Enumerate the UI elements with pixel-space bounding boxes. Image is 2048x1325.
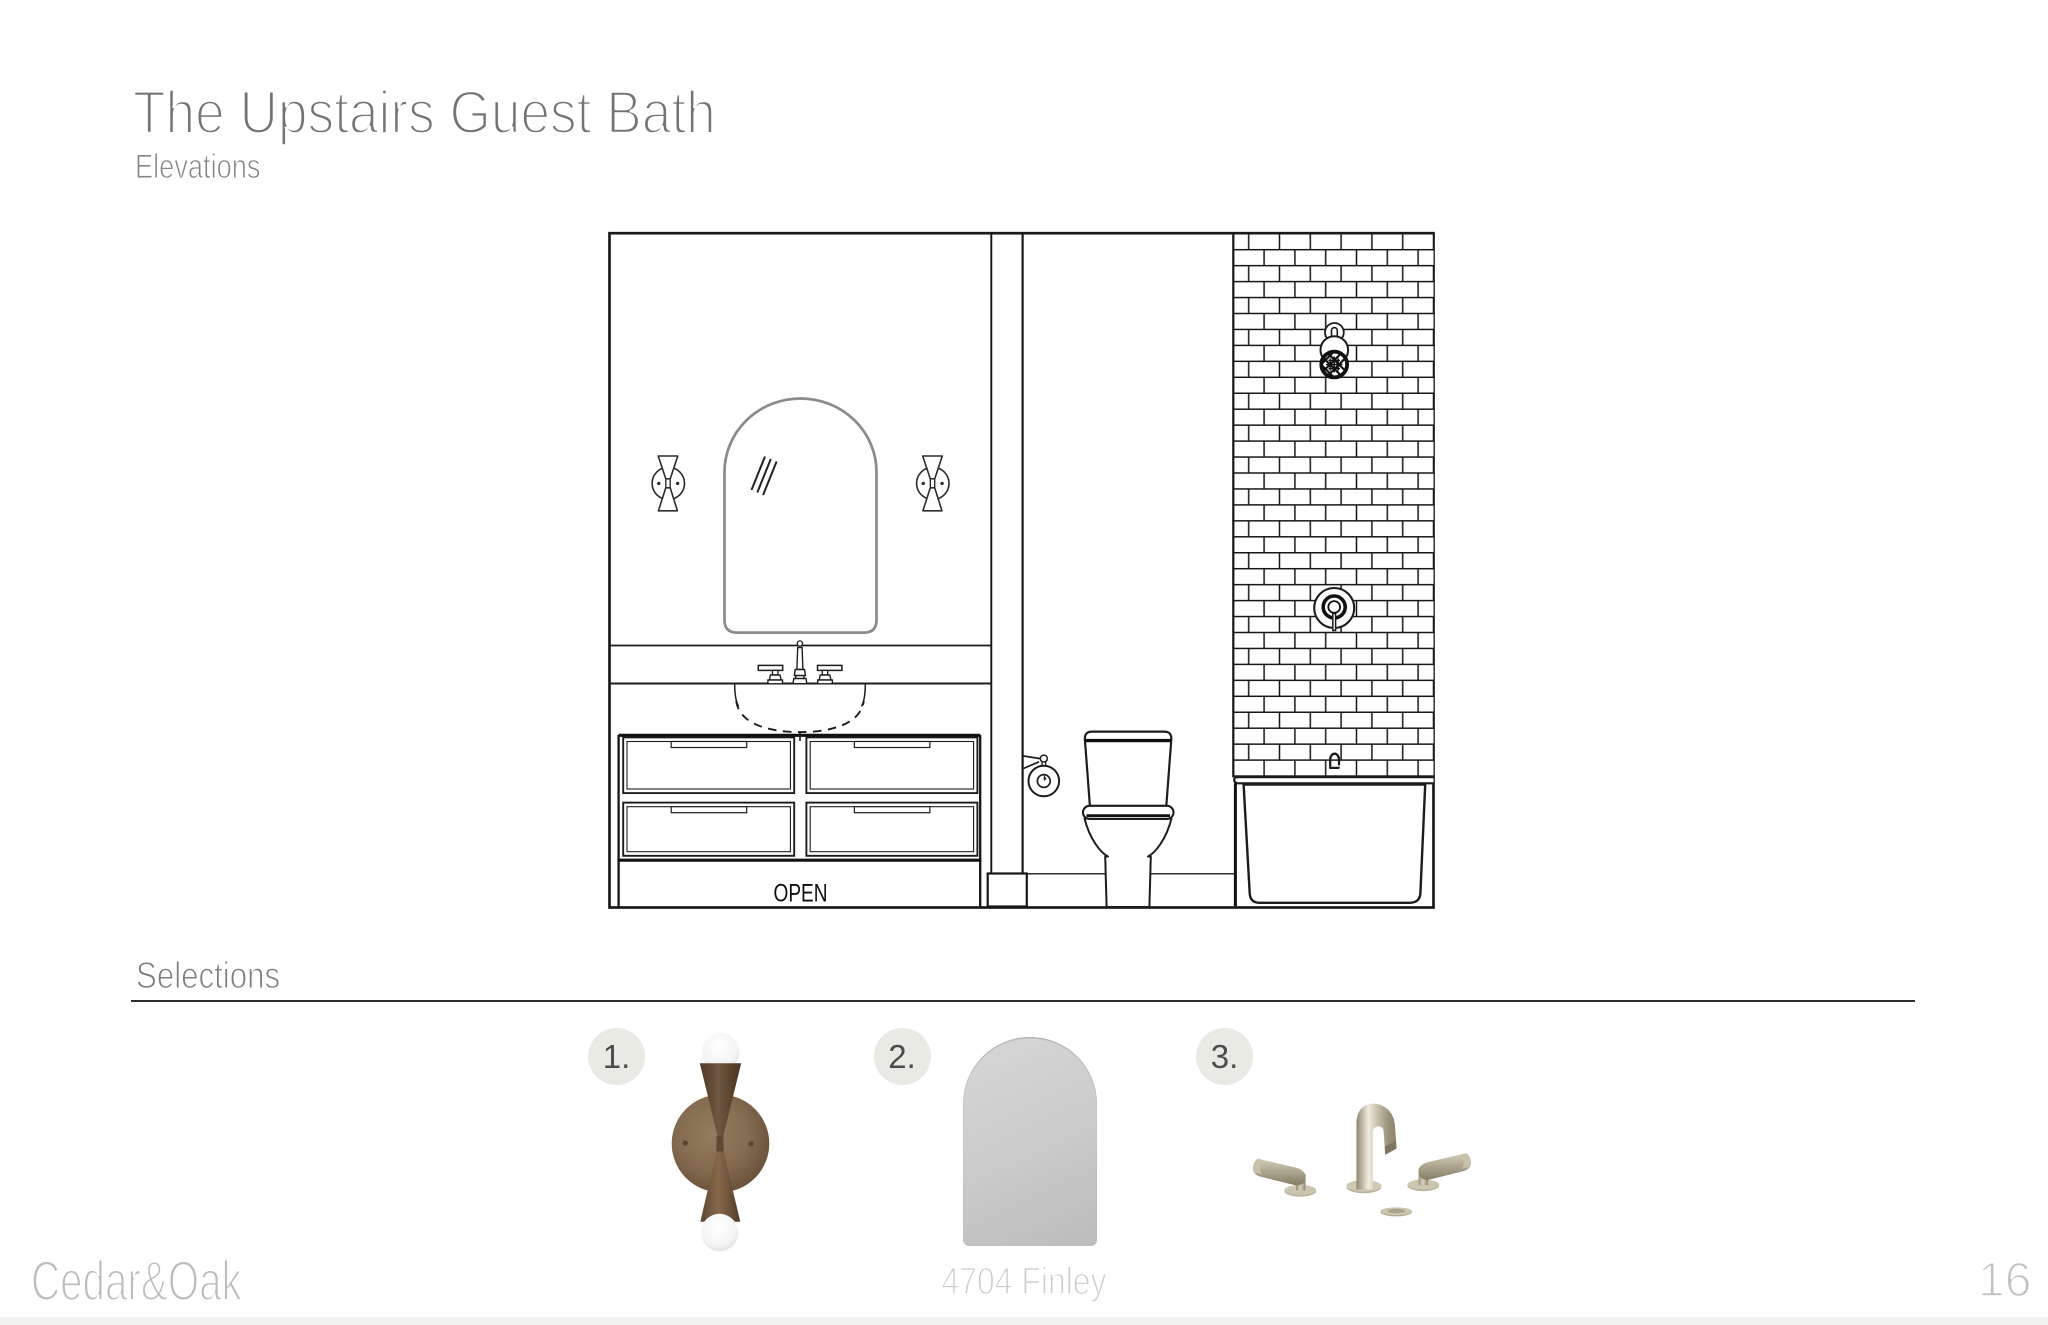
svg-text:OPEN: OPEN	[774, 880, 828, 908]
